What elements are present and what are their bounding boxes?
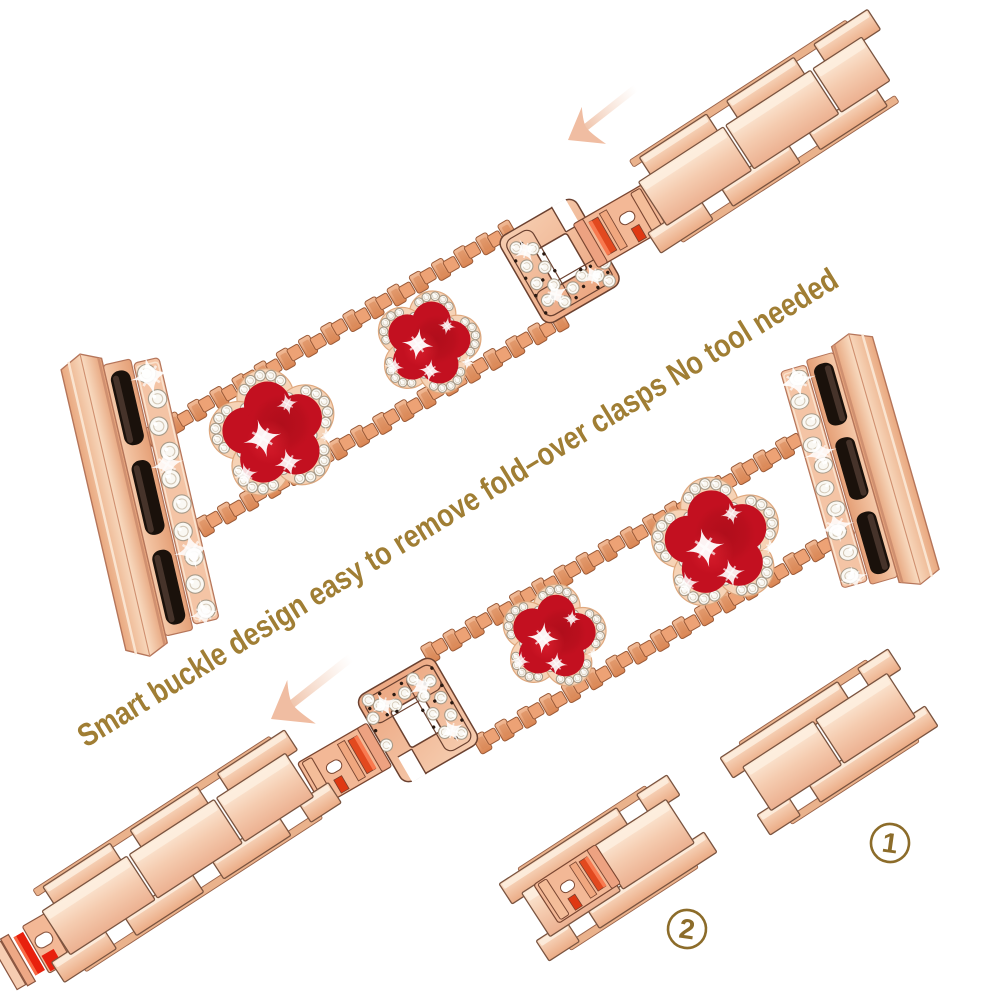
svg-text:2: 2 bbox=[677, 913, 697, 946]
svg-text:1: 1 bbox=[880, 827, 900, 860]
